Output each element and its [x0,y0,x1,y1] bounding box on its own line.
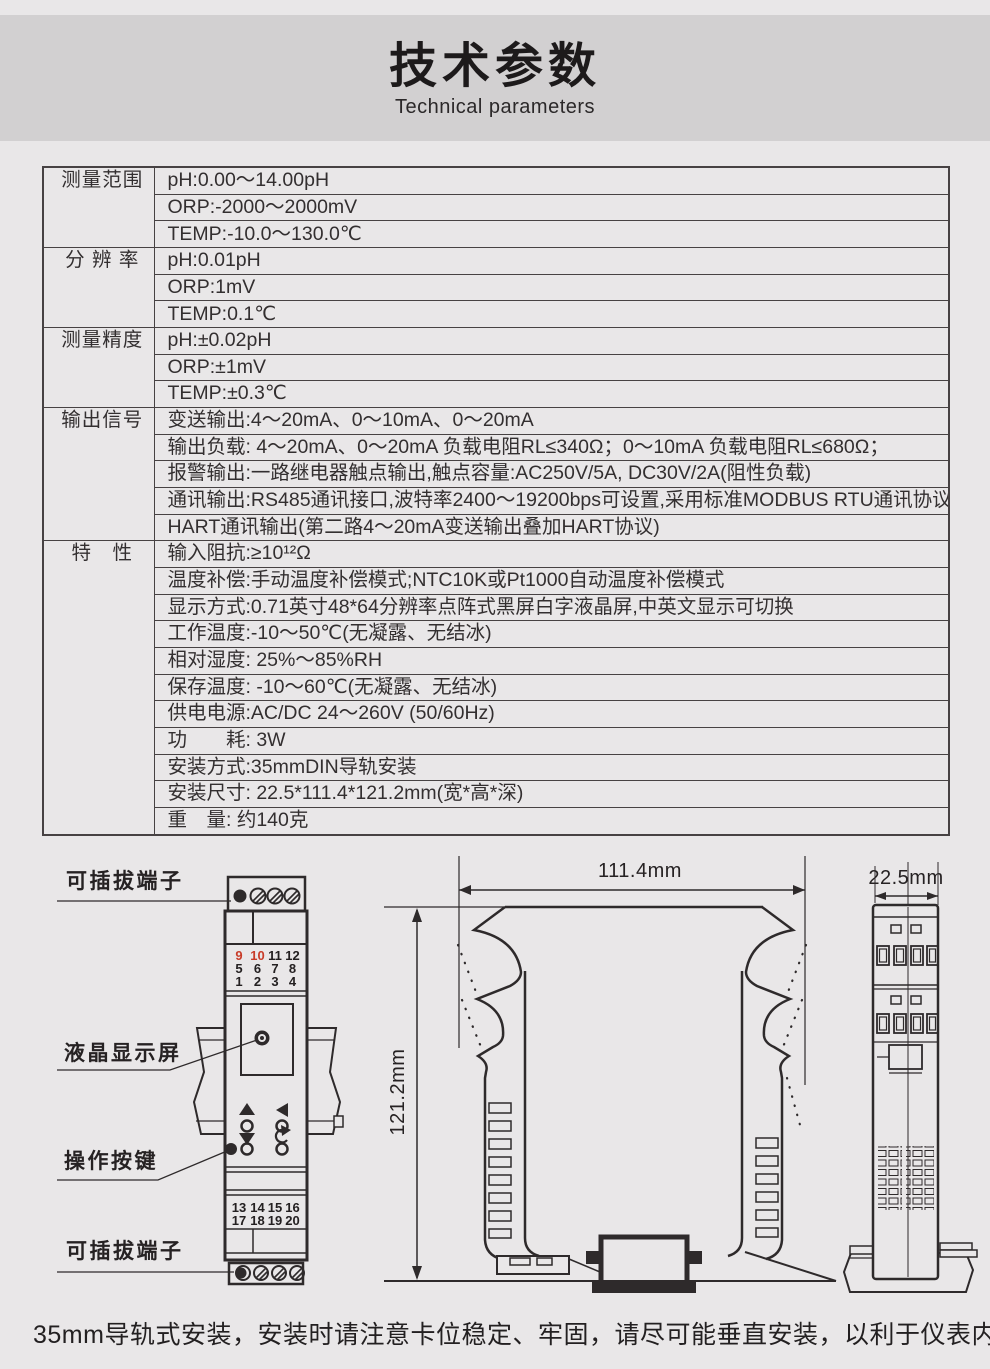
table-row: TEMP:-10.0～130.0℃ [43,221,949,248]
housing-left-wall [474,907,521,1259]
spec-value: 安装方式:35mmDIN导轨安装 [154,754,949,781]
table-row: 通讯输出:RS485通讯接口,波特率2400～19200bps可设置,采用标准M… [43,488,949,515]
spec-value: 显示方式:0.71英寸48*64分辨率点阵式黑屏白字液晶屏,中英文显示可切换 [154,594,949,621]
spec-value: TEMP:±0.3℃ [154,381,949,408]
spec-value: ORP:-2000～2000mV [154,194,949,221]
vent-grid-left [878,1146,902,1210]
dotted-lines [458,945,806,1125]
section-label-text: 输出信号 [61,411,143,431]
table-row: 输出信号 变送输出:4～20mA、0～10mA、0～20mA [43,408,949,435]
table-row: 报警输出:一路继电器触点输出,触点容量:AC250V/5A, DC30V/2A(… [43,461,949,488]
side-view-diagram: 111.4mm 121.2mm [384,856,836,1293]
housing-right-wall [746,907,793,1259]
lcd-dot [255,1031,270,1046]
vent-grid-right [906,1146,934,1210]
spec-value: HART通讯输出(第二路4～20mA变送输出叠加HART协议) [154,514,949,541]
dim-width-label: 111.4mm [598,860,682,882]
top-view-diagram: 22.5mm [844,862,977,1292]
spec-value: 工作温度:-10～50℃(无凝露、无结冰) [154,621,949,648]
vent-slots-right [756,1138,778,1237]
front-view-diagram: 9 10 11 12 5 6 7 8 1 2 3 4 [57,869,343,1284]
terminal-number: 17 [232,1213,246,1228]
table-row: 安装方式:35mmDIN导轨安装 [43,754,949,781]
page-subtitle: Technical parameters [0,95,990,119]
header-band: 技术参数 Technical parameters [0,15,990,141]
section-label-text: 分 辨 率 [65,251,139,271]
installation-diagrams: 9 10 11 12 5 6 7 8 1 2 3 4 [0,845,990,1305]
label-pluggable-terminal-top: 可插拔端子 [66,869,184,893]
spec-value: 保存温度: -10～60℃(无凝露、无结冰) [154,674,949,701]
section-label-text: 测量精度 [61,331,143,351]
rail-foot [497,1256,600,1274]
table-row: 安装尺寸: 22.5*111.4*121.2mm(宽*高*深) [43,781,949,808]
spec-value: 供电电源:AC/DC 24～260V (50/60Hz) [154,701,949,728]
spec-value: 报警输出:一路继电器触点输出,触点容量:AC250V/5A, DC30V/2A(… [154,461,949,488]
spec-table: 测量范围 pH:0.00～14.00pH ORP:-2000～2000mV TE… [42,166,950,836]
spec-section-label: 分 辨 率 [43,248,154,328]
rail-tab-right2 [940,1250,977,1257]
terminal-number: 20 [285,1213,299,1228]
pluggable-terminal-block-bottom [229,1263,304,1284]
spec-value: 温度补偿:手动温度补偿模式;NTC10K或Pt1000自动温度补偿模式 [154,568,949,595]
table-row: 测量精度 pH:±0.02pH [43,328,949,355]
din-rail-left [194,1028,228,1134]
section-label-text: 测量范围 [61,171,143,191]
spec-value: 输入阻抗:≥10¹²Ω [154,541,949,568]
terminal-number: 4 [289,974,297,989]
spec-value: 变送输出:4～20mA、0～10mA、0～20mA [154,408,949,435]
terminal-number: 19 [268,1213,282,1228]
spec-value: 相对湿度: 25%～85%RH [154,647,949,674]
mounting-note: 35mm导轨式安装，安装时请注意卡位稳定、牢固，请尽可能垂直安装，以利于仪表内部… [33,1315,973,1351]
label-operation-keys: 操作按键 [64,1149,158,1173]
dim-depth-label: 22.5mm [868,867,943,889]
rail-tab-right [940,1243,972,1250]
table-row: 重 量: 约140克 [43,807,949,835]
section-label-text: 特 性 [71,544,133,564]
label-pluggable-terminal-bottom: 可插拔端子 [66,1239,184,1263]
terminal-number: 2 [254,974,261,989]
spec-section-label: 特 性 [43,541,154,835]
leader-dot [234,890,247,903]
page: { "header": { "title": "技术参数", "subtitle… [0,0,990,1369]
leader-dot [225,1143,237,1155]
spec-value: 重 量: 约140克 [154,807,949,835]
spec-value: 通讯输出:RS485通讯接口,波特率2400～19200bps可设置,采用标准M… [154,488,949,515]
rail-tab-left [850,1246,873,1254]
spec-value: 输出负载: 4～20mA、0～20mA 负载电阻RL≤340Ω；0～10mA 负… [154,434,949,461]
dim-height-label: 121.2mm [387,1049,409,1136]
table-row: TEMP:0.1℃ [43,301,949,328]
page-title: 技术参数 [0,15,990,91]
spec-value: pH:0.01pH [154,248,949,275]
table-row: TEMP:±0.3℃ [43,381,949,408]
din-clip [586,1237,702,1293]
table-row: ORP:±1mV [43,354,949,381]
table-row: 温度补偿:手动温度补偿模式;NTC10K或Pt1000自动温度补偿模式 [43,568,949,595]
table-row: ORP:-2000～2000mV [43,194,949,221]
spec-value: 安装尺寸: 22.5*111.4*121.2mm(宽*高*深) [154,781,949,808]
table-row: 特 性 输入阻抗:≥10¹²Ω [43,541,949,568]
label-lcd-screen: 液晶显示屏 [64,1041,182,1065]
spec-value: TEMP:0.1℃ [154,301,949,328]
table-row: 显示方式:0.71英寸48*64分辨率点阵式黑屏白字液晶屏,中英文显示可切换 [43,594,949,621]
spec-section-label: 输出信号 [43,408,154,541]
table-row: HART通讯输出(第二路4～20mA变送输出叠加HART协议) [43,514,949,541]
spec-value: pH:0.00～14.00pH [154,167,949,194]
table-row: 相对湿度: 25%～85%RH [43,647,949,674]
rail-clip-tab [334,1116,343,1127]
terminal-number: 1 [235,974,242,989]
din-rail-right [305,1028,343,1134]
spec-value: ORP:1mV [154,274,949,301]
table-row: 功 耗: 3W [43,727,949,754]
table-row: 供电电源:AC/DC 24～260V (50/60Hz) [43,701,949,728]
spec-value: TEMP:-10.0～130.0℃ [154,221,949,248]
vent-slots-left [489,1103,511,1238]
terminal-number: 3 [271,974,278,989]
table-row: 输出负载: 4～20mA、0～20mA 负载电阻RL≤340Ω；0～10mA 负… [43,434,949,461]
table-row: 保存温度: -10～60℃(无凝露、无结冰) [43,674,949,701]
table-row: 分 辨 率 pH:0.01pH [43,248,949,275]
dim-height-line [412,908,422,1280]
rail-slant [745,1252,836,1281]
spec-value: ORP:±1mV [154,354,949,381]
table-row: 测量范围 pH:0.00～14.00pH [43,167,949,194]
table-row: 工作温度:-10～50℃(无凝露、无结冰) [43,621,949,648]
pluggable-terminal-block-top [228,877,305,911]
spec-section-label: 测量范围 [43,167,154,248]
dim-width-line [459,856,805,1085]
spec-value: pH:±0.02pH [154,328,949,355]
spec-section-label: 测量精度 [43,328,154,408]
spec-value: 功 耗: 3W [154,727,949,754]
table-row: ORP:1mV [43,274,949,301]
terminal-number: 18 [250,1213,264,1228]
